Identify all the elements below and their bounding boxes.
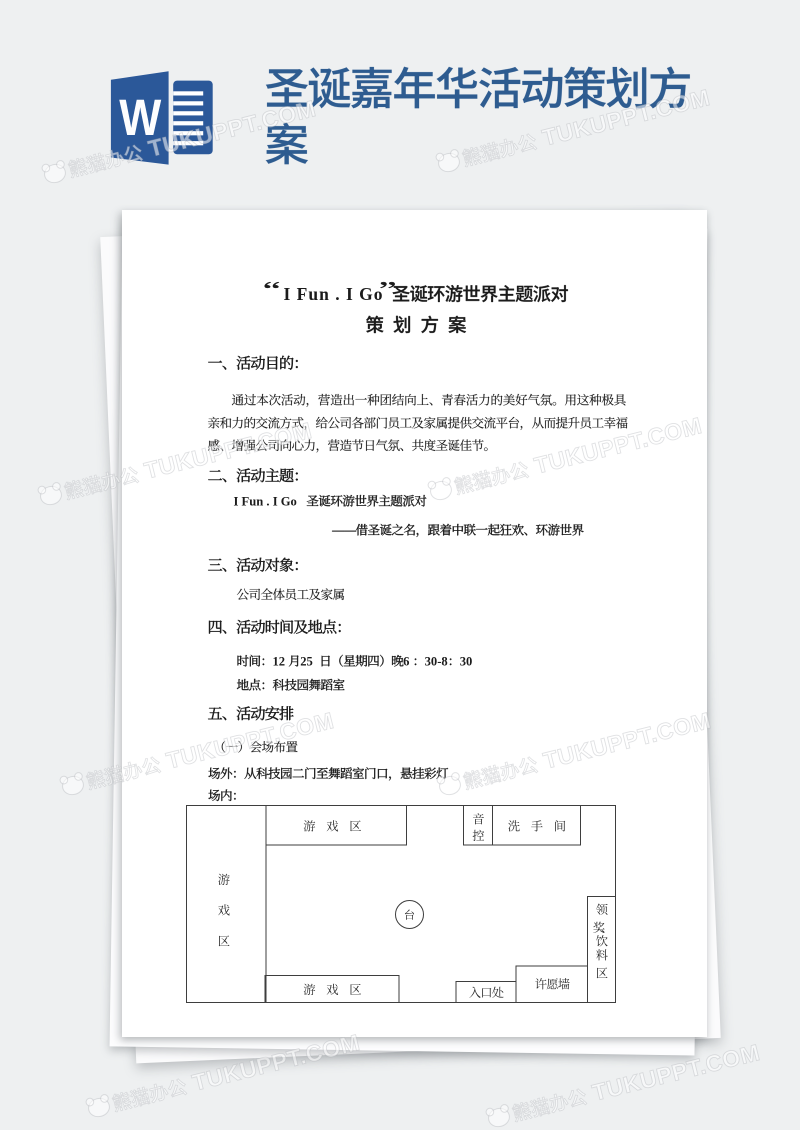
svg-text:12: 12 [273,655,286,669]
svg-text:30: 30 [460,655,473,669]
svg-text:6: 6 [403,655,409,669]
svg-text:25: 25 [300,655,313,669]
svg-text:I Fun . I Go: I Fun . I Go [284,284,384,304]
svg-text:I Fun . I Go: I Fun . I Go [234,495,297,509]
svg-text:30-8: 30-8 [425,655,448,669]
